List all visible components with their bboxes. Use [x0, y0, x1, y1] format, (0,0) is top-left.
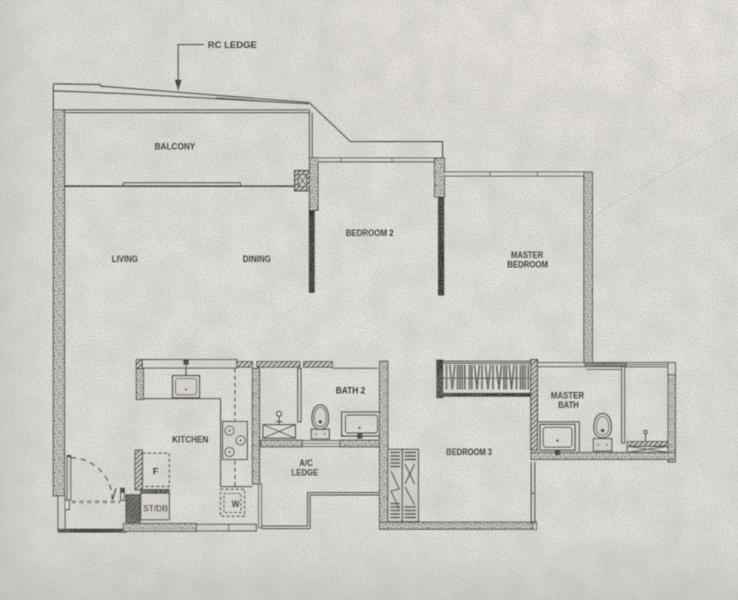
- svg-text:BALCONY: BALCONY: [155, 142, 196, 152]
- svg-text:LIVING: LIVING: [112, 254, 138, 264]
- svg-text:RC LEDGE: RC LEDGE: [208, 40, 258, 51]
- svg-text:ST/DB: ST/DB: [143, 504, 168, 514]
- svg-text:KITCHEN: KITCHEN: [172, 435, 209, 445]
- svg-text:W: W: [232, 499, 240, 510]
- svg-text:DINING: DINING: [243, 254, 271, 264]
- svg-text:MASTER: MASTER: [551, 390, 585, 400]
- svg-text:BEDROOM 2: BEDROOM 2: [346, 228, 394, 238]
- svg-text:BEDROOM: BEDROOM: [507, 260, 548, 270]
- svg-text:BATH 2: BATH 2: [336, 386, 366, 396]
- svg-text:LEDGE: LEDGE: [291, 467, 318, 477]
- svg-text:F: F: [153, 466, 159, 477]
- svg-text:BATH: BATH: [558, 400, 579, 410]
- svg-text:BEDROOM 3: BEDROOM 3: [446, 447, 492, 457]
